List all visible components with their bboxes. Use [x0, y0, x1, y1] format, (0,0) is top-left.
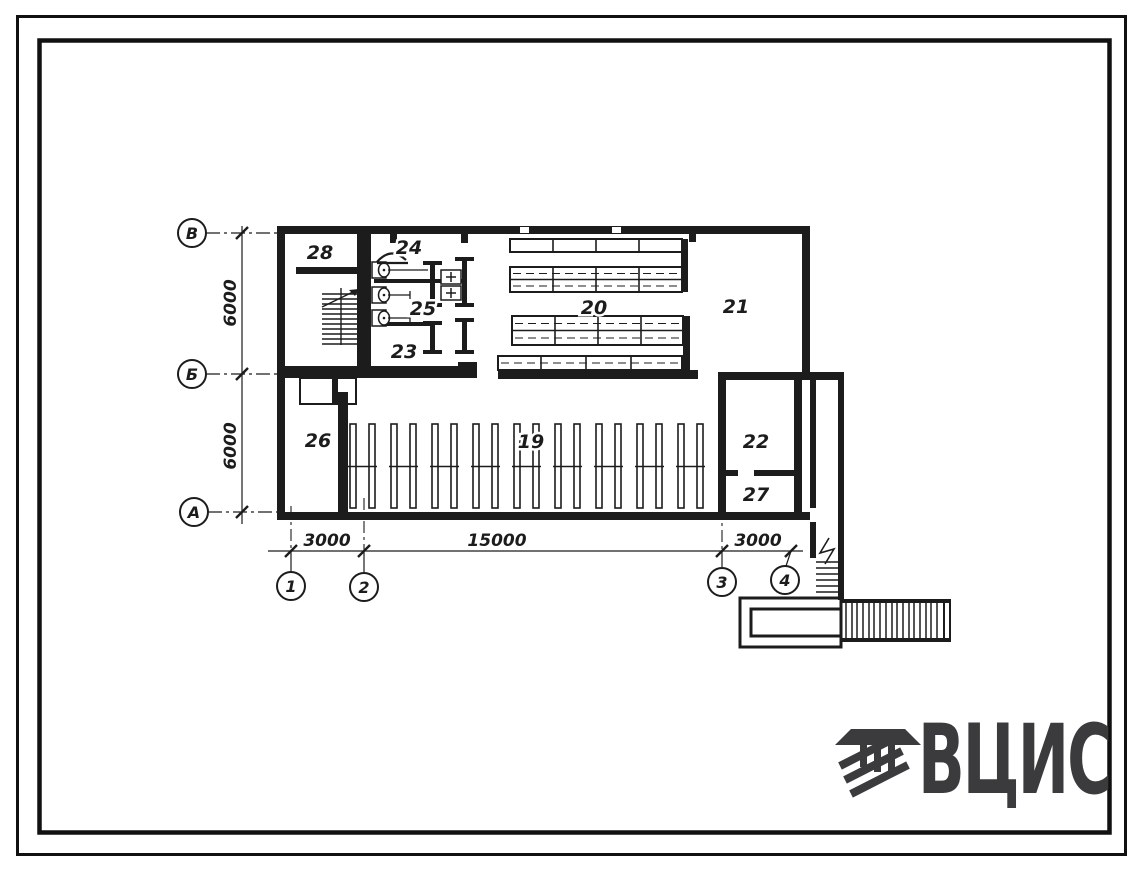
col-axis-label-1: 1	[285, 577, 296, 596]
dim-bottom-3000-right: 3000	[734, 531, 781, 551]
wc-fixtures	[372, 262, 390, 326]
room-label-23: 23	[391, 341, 417, 363]
room-label-24: 24	[396, 237, 422, 259]
cistern-boxes	[441, 270, 461, 300]
room-label-19: 19	[518, 431, 544, 453]
room-label-21: 21	[723, 296, 749, 318]
room-label-22: 22	[743, 431, 769, 453]
row-axis-label-v: В	[186, 224, 198, 243]
landing-outer	[740, 598, 841, 647]
row-axis-label-b: Б	[186, 365, 198, 384]
dim-bottom-15000: 15000	[467, 531, 526, 551]
col-axis-label-2: 2	[358, 578, 369, 597]
landing-inner	[751, 609, 841, 636]
room-label-26: 26	[305, 430, 331, 452]
vcis-logo-icon	[834, 722, 924, 800]
row-axis-label-a: А	[186, 503, 200, 522]
room-label-27: 27	[743, 484, 770, 506]
room-label-25: 25	[410, 298, 436, 320]
external-stair	[740, 538, 951, 647]
dim-left-6000-top: 6000	[221, 279, 241, 326]
dim-left-6000-bottom: 6000	[221, 422, 241, 469]
room-label-28: 28	[307, 242, 333, 264]
room-label-20: 20	[581, 297, 607, 319]
col-axis-label-4: 4	[778, 571, 790, 590]
internal-stair	[322, 288, 359, 345]
rack-end-posts	[681, 239, 690, 370]
break-line	[820, 538, 834, 564]
col-axis-label-3: 3	[716, 573, 727, 592]
dim-bottom-3000-left: 3000	[303, 531, 350, 551]
vcis-logo-text: ВЦИС	[918, 712, 1110, 809]
dimension-lines	[206, 226, 803, 573]
